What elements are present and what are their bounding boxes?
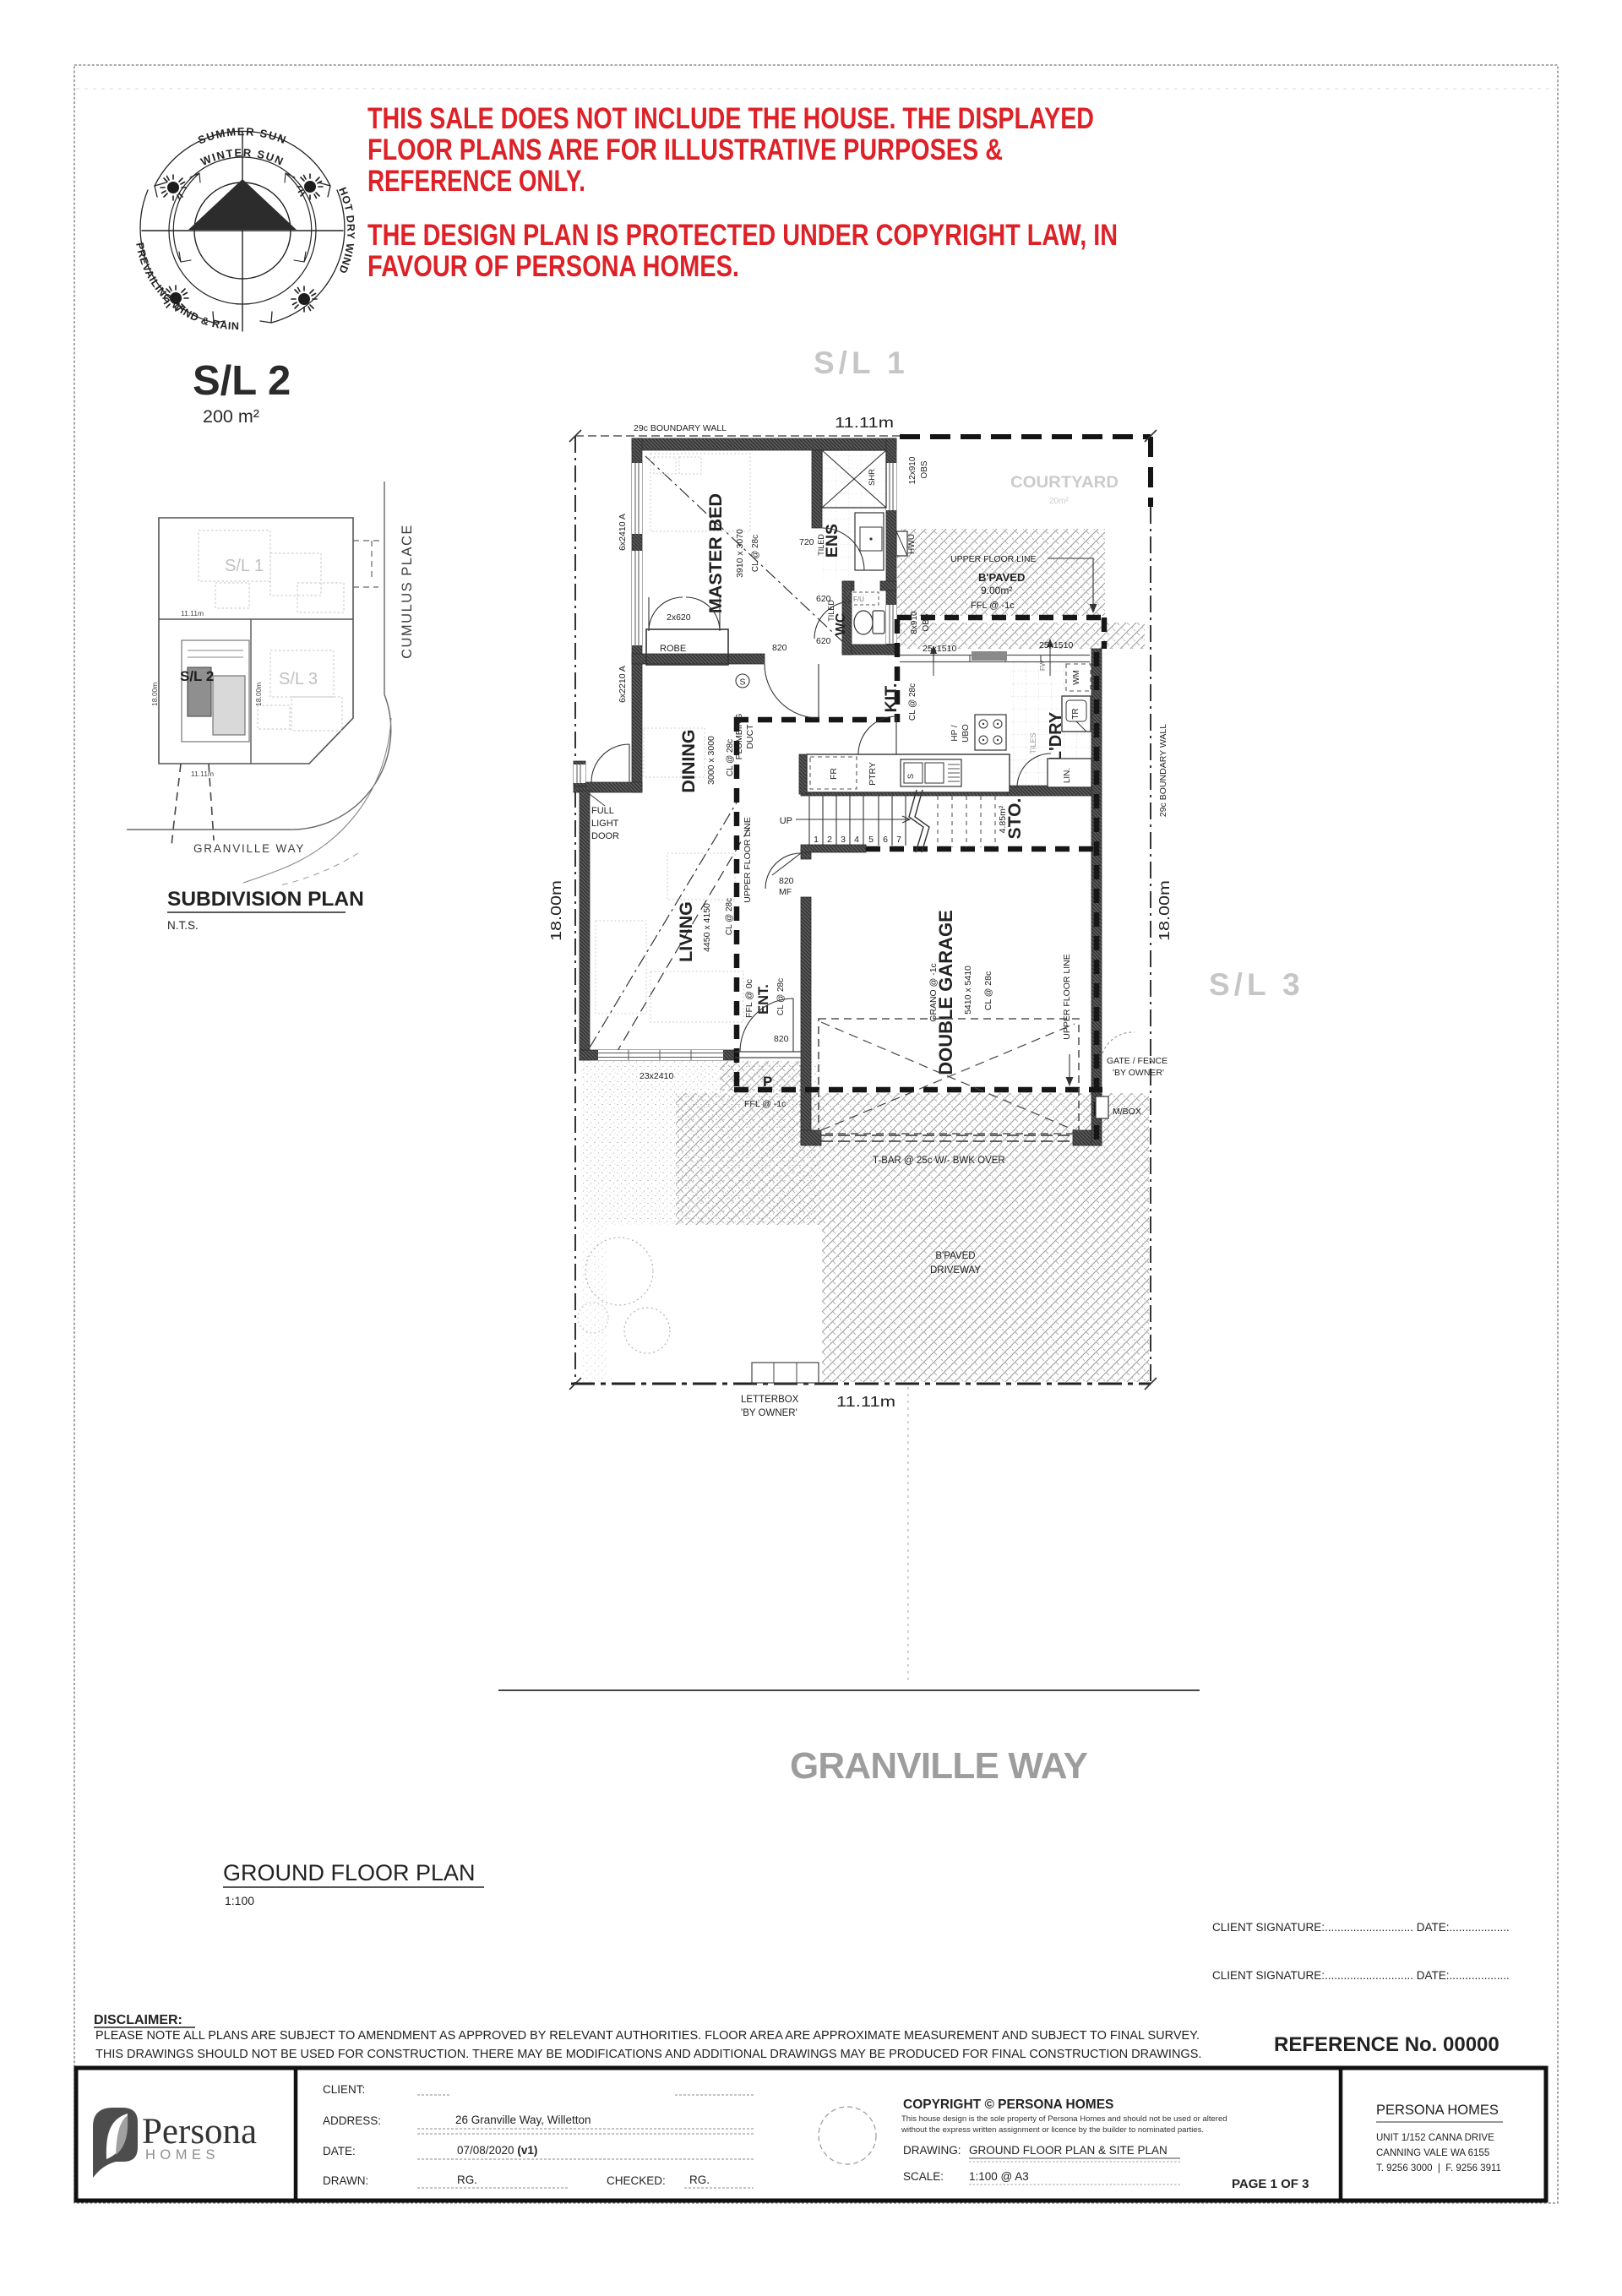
svg-text:200 m²: 200 m² bbox=[203, 406, 259, 427]
svg-text:ENT.: ENT. bbox=[756, 984, 771, 1015]
svg-text:DOUBLE GARAGE: DOUBLE GARAGE bbox=[935, 910, 956, 1075]
svg-text:6: 6 bbox=[883, 835, 888, 845]
svg-text:PERSONA HOMES: PERSONA HOMES bbox=[1376, 2103, 1499, 2118]
svg-text:MASTER BED: MASTER BED bbox=[705, 493, 726, 613]
svg-text:20m²: 20m² bbox=[1049, 497, 1069, 506]
svg-text:DRAWING:: DRAWING: bbox=[903, 2144, 961, 2157]
svg-text:HP /: HP / bbox=[950, 725, 960, 741]
svg-text:T. 9256 3000 | F. 9256 3911: T. 9256 3000 | F. 9256 3911 bbox=[1376, 2163, 1501, 2174]
svg-text:FAVOUR OF PERSONA HOMES.: FAVOUR OF PERSONA HOMES. bbox=[367, 250, 739, 283]
svg-text:HOMES: HOMES bbox=[145, 2147, 220, 2163]
svg-text:CLIENT SIGNATURE:.............: CLIENT SIGNATURE:.......................… bbox=[1212, 1969, 1510, 1982]
svg-text:S/L 2: S/L 2 bbox=[193, 358, 291, 404]
svg-text:KIT.: KIT. bbox=[882, 683, 901, 713]
svg-text:620: 620 bbox=[816, 636, 831, 646]
svg-text:THIS DRAWINGS SHOULD NOT BE US: THIS DRAWINGS SHOULD NOT BE USED FOR CON… bbox=[95, 2048, 1201, 2061]
svg-text:PAGE 1 OF 3: PAGE 1 OF 3 bbox=[1232, 2177, 1309, 2191]
svg-text:'BY OWNER': 'BY OWNER' bbox=[1113, 1068, 1164, 1078]
svg-text:DINING: DINING bbox=[678, 729, 699, 792]
svg-text:Persona: Persona bbox=[142, 2112, 257, 2152]
svg-text:29c BOUNDARY WALL: 29c BOUNDARY WALL bbox=[634, 423, 727, 433]
svg-text:WC: WC bbox=[834, 612, 848, 635]
svg-text:RG.: RG. bbox=[689, 2174, 710, 2186]
svg-text:GROUND FLOOR PLAN & SITE PLAN: GROUND FLOOR PLAN & SITE PLAN bbox=[969, 2144, 1168, 2157]
svg-text:1:100: 1:100 bbox=[225, 1894, 254, 1907]
svg-text:SCALE:: SCALE: bbox=[903, 2170, 944, 2183]
svg-text:07/08/2020 (v1): 07/08/2020 (v1) bbox=[457, 2144, 537, 2157]
svg-text:CL @ 28c: CL @ 28c bbox=[983, 971, 993, 1010]
svg-text:DUCT: DUCT bbox=[745, 724, 755, 749]
svg-text:T-BAR @ 25c W/- BWK OVER: T-BAR @ 25c W/- BWK OVER bbox=[873, 1156, 1005, 1166]
svg-text:PLEASE NOTE ALL PLANS ARE SUBJ: PLEASE NOTE ALL PLANS ARE SUBJECT TO AME… bbox=[95, 2029, 1200, 2043]
svg-text:23x2410: 23x2410 bbox=[640, 1071, 673, 1081]
svg-text:FFL @ 0c: FFL @ 0c bbox=[744, 979, 754, 1018]
svg-text:RG.: RG. bbox=[457, 2174, 477, 2186]
svg-text:18.00m: 18.00m bbox=[547, 880, 564, 941]
svg-text:DRIVEWAY: DRIVEWAY bbox=[930, 1265, 981, 1276]
svg-text:DOOR: DOOR bbox=[591, 831, 619, 841]
svg-text:1: 1 bbox=[814, 835, 819, 845]
svg-text:18.00m: 18.00m bbox=[1156, 880, 1173, 941]
svg-text:5: 5 bbox=[868, 835, 874, 845]
svg-text:GRANVILLE WAY: GRANVILLE WAY bbox=[193, 842, 305, 855]
svg-text:without the express written as: without the express written assignment o… bbox=[901, 2125, 1204, 2135]
svg-text:LIVING: LIVING bbox=[676, 901, 696, 962]
svg-text:UNIT 1/152 CANNA DRIVE: UNIT 1/152 CANNA DRIVE bbox=[1376, 2133, 1494, 2143]
svg-text:4450 x 4150: 4450 x 4150 bbox=[702, 903, 712, 952]
svg-text:LIGHT: LIGHT bbox=[591, 819, 619, 829]
svg-text:6x2410 A: 6x2410 A bbox=[618, 514, 628, 551]
svg-text:UPPER FLOOR LINE: UPPER FLOOR LINE bbox=[950, 554, 1037, 564]
svg-text:DATE:: DATE: bbox=[323, 2145, 356, 2157]
svg-text:OBS: OBS bbox=[920, 460, 929, 478]
svg-text:UBO: UBO bbox=[961, 724, 971, 743]
svg-text:OBS: OBS bbox=[922, 613, 931, 631]
svg-text:N.T.S.: N.T.S. bbox=[167, 919, 199, 932]
svg-text:5410 x 5410: 5410 x 5410 bbox=[963, 966, 973, 1015]
svg-text:29c BOUNDARY WALL: 29c BOUNDARY WALL bbox=[1158, 724, 1168, 817]
svg-text:LIN.: LIN. bbox=[1063, 768, 1072, 783]
svg-text:820: 820 bbox=[772, 643, 787, 653]
svg-text:FFL @ -1c: FFL @ -1c bbox=[971, 601, 1015, 611]
svg-text:F/U: F/U bbox=[853, 596, 864, 603]
svg-text:PTRY: PTRY bbox=[868, 762, 878, 786]
svg-text:REFERENCE No. 00000: REFERENCE No. 00000 bbox=[1274, 2033, 1500, 2056]
svg-text:UPPER FLOOR LINE: UPPER FLOOR LINE bbox=[743, 817, 753, 903]
svg-text:PLUMBING: PLUMBING bbox=[734, 714, 744, 760]
svg-text:12x910: 12x910 bbox=[908, 456, 917, 484]
svg-text:'BY OWNER': 'BY OWNER' bbox=[741, 1408, 797, 1418]
svg-text:COURTYARD: COURTYARD bbox=[1010, 474, 1119, 492]
svg-text:P: P bbox=[763, 1074, 772, 1090]
svg-text:S/L 2: S/L 2 bbox=[180, 668, 214, 684]
svg-text:1:100 @ A3: 1:100 @ A3 bbox=[969, 2170, 1029, 2183]
svg-text:CL @ 28c: CL @ 28c bbox=[751, 535, 760, 572]
svg-text:HWU: HWU bbox=[907, 534, 917, 554]
svg-text:MF: MF bbox=[779, 887, 792, 897]
svg-text:WM: WM bbox=[1072, 670, 1081, 685]
svg-text:18.00m: 18.00m bbox=[254, 683, 263, 706]
svg-text:8x910: 8x910 bbox=[910, 611, 919, 634]
svg-text:26 Granville Way, Willetton: 26 Granville Way, Willetton bbox=[455, 2114, 591, 2126]
svg-text:FW: FW bbox=[1039, 660, 1047, 671]
svg-text:CL @ 28c: CL @ 28c bbox=[776, 978, 786, 1015]
svg-text:THIS SALE DOES NOT INCLUDE THE: THIS SALE DOES NOT INCLUDE THE HOUSE. TH… bbox=[367, 102, 1094, 135]
svg-text:CANNING VALE WA 6155: CANNING VALE WA 6155 bbox=[1376, 2148, 1489, 2158]
svg-text:3000 x 3000: 3000 x 3000 bbox=[706, 736, 716, 785]
svg-text:This house design is the sole: This house design is the sole property o… bbox=[901, 2114, 1227, 2124]
svg-text:620: 620 bbox=[816, 594, 831, 604]
svg-text:CL @ 28c: CL @ 28c bbox=[725, 898, 734, 935]
svg-text:TR: TR bbox=[1071, 708, 1080, 719]
svg-text:ROBE: ROBE bbox=[660, 644, 686, 654]
svg-text:LETTERBOX: LETTERBOX bbox=[741, 1395, 799, 1405]
svg-text:CUMULUS PLACE: CUMULUS PLACE bbox=[400, 524, 415, 659]
svg-text:9.00m²: 9.00m² bbox=[981, 585, 1012, 596]
svg-text:SUBDIVISION PLAN: SUBDIVISION PLAN bbox=[167, 888, 364, 911]
svg-text:CLIENT:: CLIENT: bbox=[323, 2083, 365, 2096]
svg-text:TILED: TILED bbox=[817, 534, 825, 556]
svg-text:S: S bbox=[906, 774, 915, 779]
svg-text:S: S bbox=[739, 677, 745, 688]
svg-text:M/BOX: M/BOX bbox=[1113, 1107, 1141, 1117]
svg-text:UP: UP bbox=[780, 816, 792, 826]
svg-text:CL @ 28c: CL @ 28c bbox=[726, 739, 735, 776]
svg-text:S/L 3: S/L 3 bbox=[1209, 967, 1304, 1002]
svg-text:COPYRIGHT © PERSONA HOMES: COPYRIGHT © PERSONA HOMES bbox=[903, 2097, 1113, 2112]
svg-text:THE DESIGN PLAN IS PROTECTED U: THE DESIGN PLAN IS PROTECTED UNDER COPYR… bbox=[367, 219, 1118, 252]
svg-text:7: 7 bbox=[896, 835, 901, 845]
svg-text:2: 2 bbox=[827, 835, 832, 845]
svg-text:11.11m: 11.11m bbox=[836, 1393, 895, 1410]
svg-text:3: 3 bbox=[841, 835, 846, 845]
svg-text:GROUND FLOOR PLAN: GROUND FLOOR PLAN bbox=[223, 1860, 476, 1885]
svg-text:ADDRESS:: ADDRESS: bbox=[323, 2114, 381, 2127]
svg-text:DRAWN:: DRAWN: bbox=[323, 2174, 368, 2187]
svg-text:FFL @ -1c: FFL @ -1c bbox=[744, 1099, 786, 1109]
svg-text:820: 820 bbox=[774, 1034, 789, 1044]
svg-text:REFERENCE ONLY.: REFERENCE ONLY. bbox=[367, 165, 585, 198]
svg-text:18.00m: 18.00m bbox=[150, 683, 159, 706]
svg-text:3910 x 3070: 3910 x 3070 bbox=[735, 529, 745, 578]
svg-text:11.11m: 11.11m bbox=[181, 609, 204, 618]
svg-text:STO.: STO. bbox=[1005, 798, 1025, 840]
svg-text:25x1510: 25x1510 bbox=[923, 644, 956, 654]
svg-text:2x620: 2x620 bbox=[667, 612, 691, 623]
svg-text:CLIENT SIGNATURE:.............: CLIENT SIGNATURE:.......................… bbox=[1212, 1921, 1510, 1934]
svg-text:6x2210 A: 6x2210 A bbox=[618, 666, 628, 703]
svg-text:25x1510: 25x1510 bbox=[1039, 640, 1073, 650]
svg-text:FULL: FULL bbox=[591, 806, 614, 816]
svg-text:GRANVILLE WAY: GRANVILLE WAY bbox=[790, 1745, 1094, 1787]
svg-text:FLOOR PLANS ARE FOR ILLUSTRATI: FLOOR PLANS ARE FOR ILLUSTRATIVE PURPOSE… bbox=[367, 133, 1003, 166]
svg-text:GATE / FENCE: GATE / FENCE bbox=[1107, 1056, 1168, 1066]
svg-text:UPPER FLOOR LINE: UPPER FLOOR LINE bbox=[1062, 954, 1072, 1040]
svg-text:B'PAVED: B'PAVED bbox=[935, 1251, 975, 1261]
svg-text:11.11m: 11.11m bbox=[835, 414, 894, 431]
svg-text:4: 4 bbox=[854, 835, 859, 845]
svg-text:TILES: TILES bbox=[1029, 732, 1037, 754]
svg-text:S/L 1: S/L 1 bbox=[814, 345, 909, 380]
svg-text:820: 820 bbox=[779, 876, 794, 886]
svg-text:DISCLAIMER:: DISCLAIMER: bbox=[94, 2013, 182, 2027]
svg-text:S/L 3: S/L 3 bbox=[279, 670, 318, 688]
svg-text:B'PAVED: B'PAVED bbox=[978, 571, 1025, 584]
svg-text:CL @ 28c: CL @ 28c bbox=[908, 683, 917, 721]
svg-text:S/L 1: S/L 1 bbox=[225, 557, 264, 575]
svg-text:CHECKED:: CHECKED: bbox=[607, 2174, 666, 2187]
svg-text:720: 720 bbox=[799, 537, 814, 547]
svg-text:SHR: SHR bbox=[868, 469, 877, 486]
svg-text:11.11m: 11.11m bbox=[191, 770, 214, 778]
svg-text:FR: FR bbox=[829, 768, 839, 780]
